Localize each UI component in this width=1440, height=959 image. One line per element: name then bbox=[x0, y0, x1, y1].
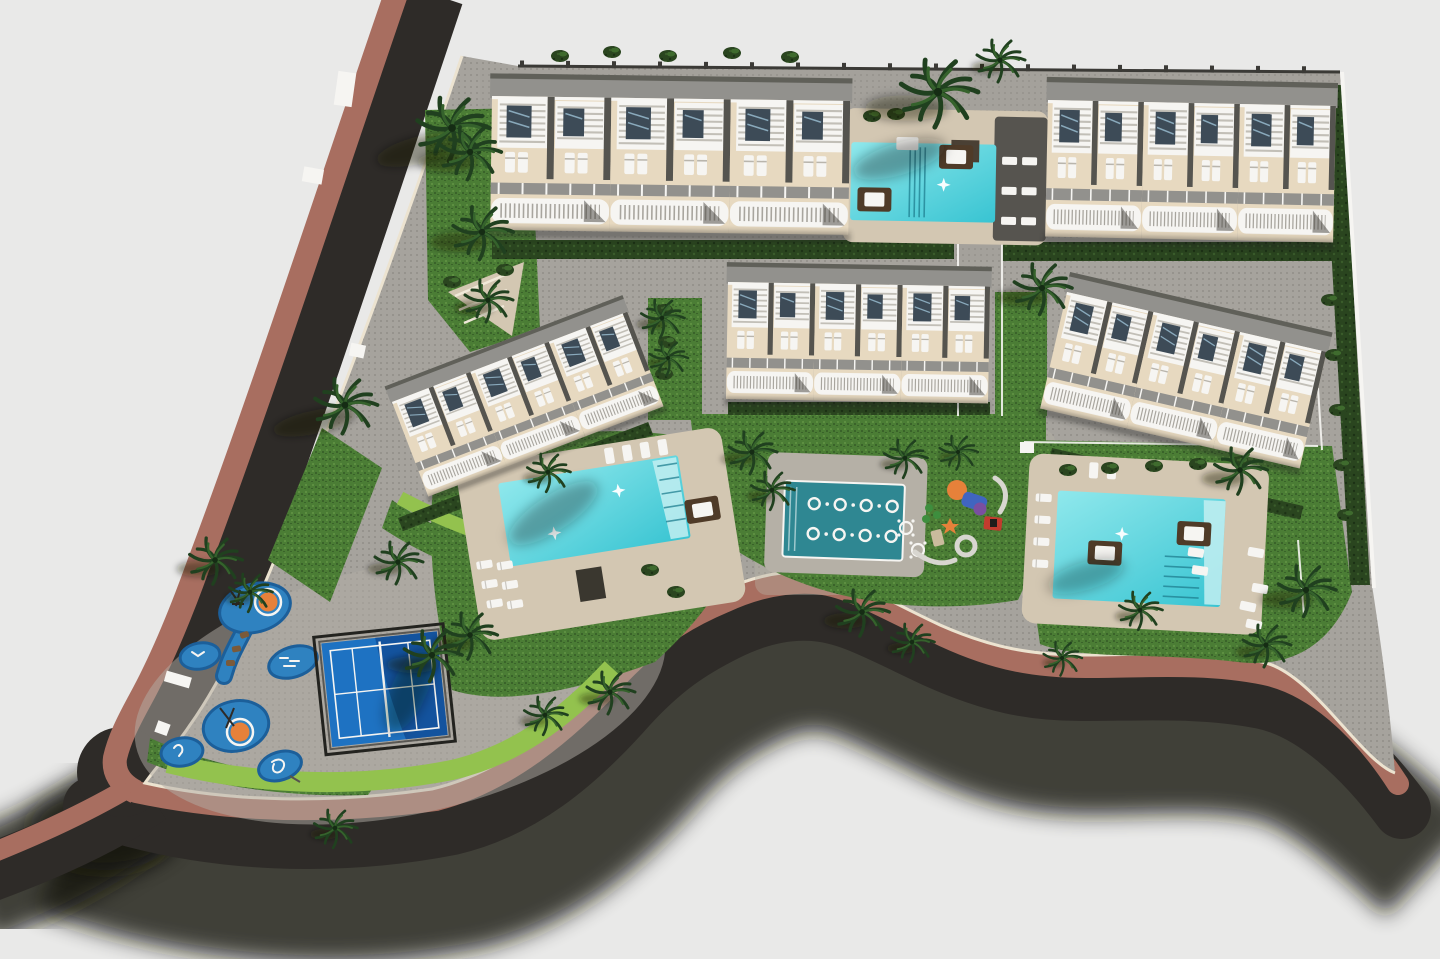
townhouse-module bbox=[726, 282, 815, 401]
townhouse-module bbox=[729, 99, 850, 235]
hedge-top-west bbox=[492, 240, 954, 259]
townhouse-module bbox=[610, 98, 731, 234]
spa-pool bbox=[782, 481, 905, 561]
townhouse-module bbox=[813, 284, 902, 403]
apartment-block-3 bbox=[724, 262, 991, 410]
gate bbox=[1020, 442, 1034, 453]
spa-area bbox=[764, 452, 928, 578]
townhouse-module bbox=[1237, 104, 1336, 242]
apartment-block-2 bbox=[1043, 77, 1338, 250]
townhouse-module bbox=[490, 96, 611, 232]
render-stage: Aerial top-down 3D architectural renderi… bbox=[0, 0, 1440, 959]
play-canopy-purple bbox=[974, 503, 987, 516]
pool-daybed bbox=[1176, 521, 1211, 547]
townhouse-module bbox=[1045, 100, 1144, 238]
play-unit-black bbox=[990, 519, 997, 527]
townhouse-module bbox=[901, 285, 990, 404]
pool-shower bbox=[576, 566, 607, 602]
pool-dark-deck bbox=[993, 117, 1048, 242]
apartment-block-1 bbox=[488, 73, 852, 242]
pool-daybed bbox=[857, 187, 891, 212]
townhouse-module bbox=[1141, 102, 1240, 240]
site-plan-render: Aerial top-down 3D architectural renderi… bbox=[0, 0, 1440, 959]
